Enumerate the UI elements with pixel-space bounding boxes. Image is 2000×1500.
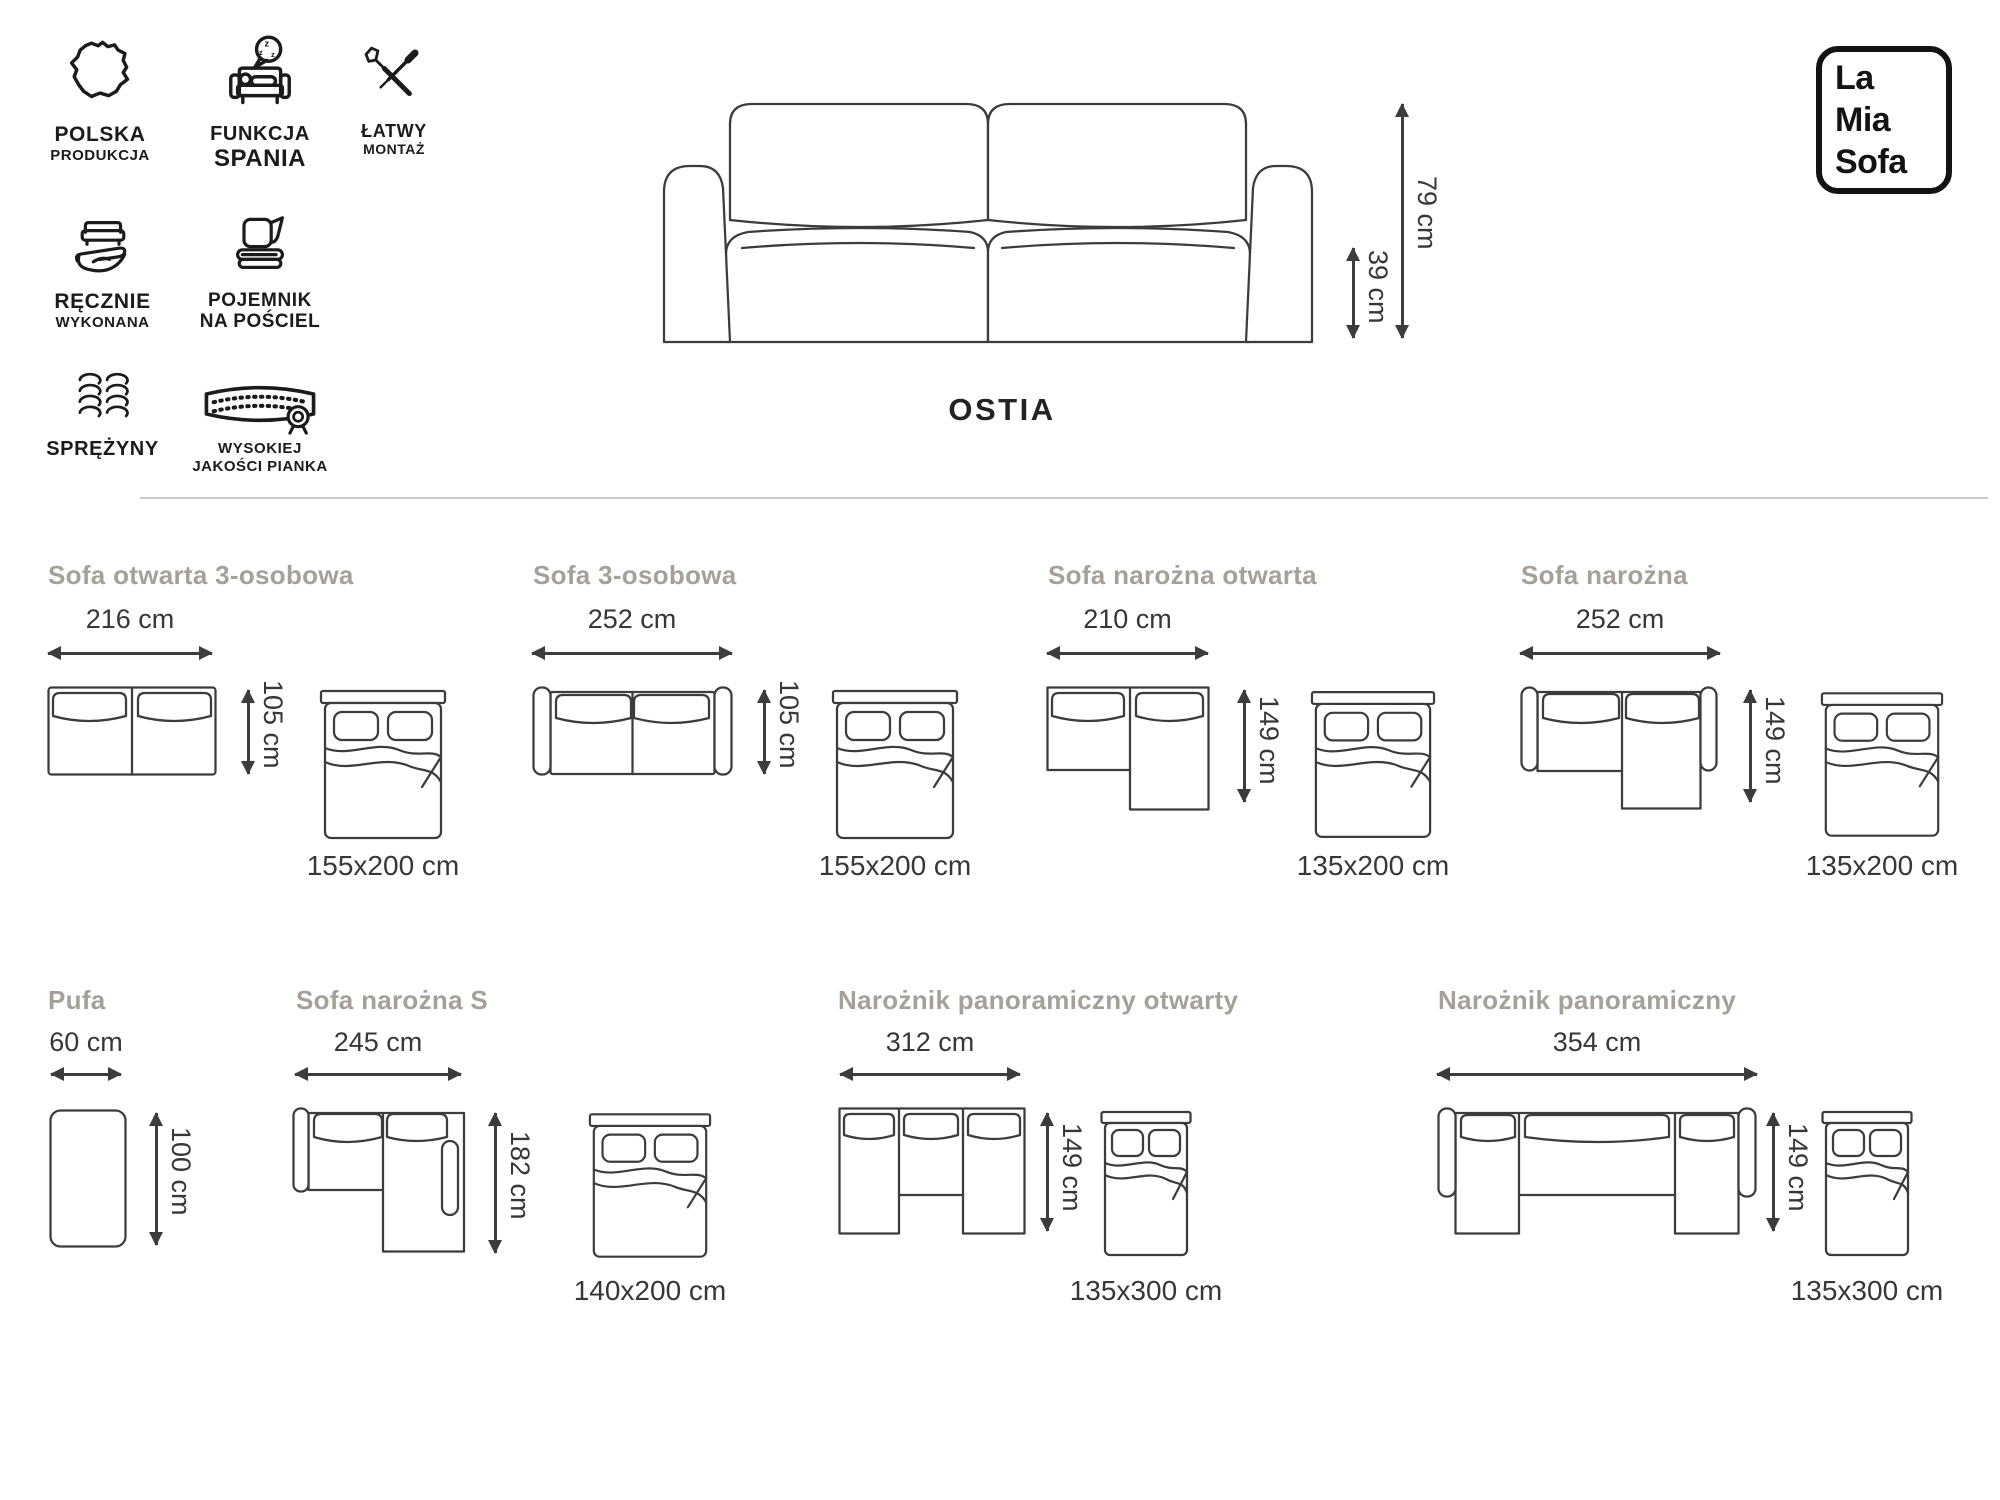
feature-sublabel: WYKONANA bbox=[35, 314, 170, 331]
bed-size-label: 135x300 cm bbox=[1772, 1275, 1962, 1307]
feature-label: RĘCZNIE bbox=[35, 290, 170, 314]
depth-label: 105 cm bbox=[257, 680, 288, 769]
sofa-top-view bbox=[1437, 1107, 1757, 1235]
sofa-top-view bbox=[532, 686, 733, 777]
bed-size-label: 155x200 cm bbox=[800, 850, 990, 882]
variant-sofa-otwarta-3-osobowa: Sofa otwarta 3-osobowa 216 cm 105 cm bbox=[40, 560, 490, 900]
width-arrow bbox=[1520, 652, 1720, 655]
zzz-text: z bbox=[259, 48, 263, 57]
variant-title: Sofa narożna S bbox=[296, 985, 488, 1016]
variant-pufa: Pufa 60 cm 100 cm bbox=[40, 985, 260, 1285]
feature-label: POLSKA bbox=[35, 123, 165, 147]
height-arrow bbox=[1401, 104, 1404, 338]
depth-label: 149 cm bbox=[1253, 696, 1284, 785]
feature-sublabel: MONTAŻ bbox=[348, 141, 440, 157]
depth-arrow bbox=[1749, 690, 1752, 802]
brand-logo-line: Mia bbox=[1835, 99, 1946, 141]
pufa-top-view bbox=[49, 1109, 127, 1248]
bed-top-view bbox=[1100, 1109, 1192, 1259]
feature-label: POJEMNIK bbox=[190, 290, 330, 311]
foam-mattress-icon bbox=[201, 372, 319, 436]
feature-label: ŁATWY bbox=[348, 121, 440, 141]
brand-logo-line: Sofa bbox=[1835, 141, 1946, 183]
brand-logo: La Mia Sofa bbox=[1816, 46, 1952, 194]
sofa-top-view bbox=[292, 1107, 469, 1254]
product-name: OSTIA bbox=[902, 392, 1102, 428]
variant-title: Sofa narożna bbox=[1521, 560, 1688, 591]
variant-title: Narożnik panoramiczny otwarty bbox=[838, 985, 1238, 1016]
feature-sprezyny: SPRĘŻYNY bbox=[35, 365, 170, 460]
bed-top-view bbox=[588, 1109, 712, 1261]
poland-map-icon bbox=[56, 32, 144, 118]
bed-top-view bbox=[1820, 688, 1944, 840]
width-label: 210 cm bbox=[1047, 604, 1208, 635]
depth-label: 149 cm bbox=[1782, 1123, 1813, 1212]
sofa-top-view bbox=[47, 686, 217, 776]
bed-size-label: 135x200 cm bbox=[1278, 850, 1468, 882]
feature-recznie-wykonana: RĘCZNIE WYKONANA bbox=[35, 205, 170, 331]
width-label: 252 cm bbox=[532, 604, 732, 635]
sofa-front-view bbox=[660, 96, 1316, 346]
width-label: 60 cm bbox=[41, 1027, 131, 1058]
width-arrow bbox=[1047, 652, 1208, 655]
bed-top-view bbox=[1821, 1109, 1913, 1259]
variant-naroznik-panoramiczny: Narożnik panoramiczny 354 cm 149 cm bbox=[1430, 985, 1990, 1305]
depth-arrow bbox=[1772, 1113, 1775, 1231]
feature-sublabel: NA POŚCIEL bbox=[190, 311, 330, 333]
width-arrow bbox=[295, 1073, 461, 1076]
depth-label: 149 cm bbox=[1759, 696, 1790, 785]
bedding-container-icon bbox=[215, 205, 305, 285]
feature-polska-produkcja: POLSKA PRODUKCJA bbox=[35, 32, 165, 164]
depth-arrow bbox=[494, 1113, 497, 1253]
section-divider bbox=[140, 497, 1988, 499]
width-label: 312 cm bbox=[840, 1027, 1020, 1058]
variant-sofa-narozna-otwarta: Sofa narożna otwarta 210 cm 149 cm bbox=[1040, 560, 1480, 900]
width-arrow bbox=[48, 652, 212, 655]
depth-label: 182 cm bbox=[504, 1131, 535, 1220]
feature-wysokiej-jakosci-pianka: WYSOKIEJ JAKOŚCI PIANKA bbox=[185, 372, 335, 475]
brand-logo-line: La bbox=[1835, 57, 1946, 99]
bed-size-label: 135x300 cm bbox=[1051, 1275, 1241, 1307]
bed-top-view bbox=[831, 688, 959, 840]
sofa-top-view bbox=[1046, 686, 1210, 811]
feature-label: SPRĘŻYNY bbox=[35, 438, 170, 460]
depth-label: 149 cm bbox=[1056, 1123, 1087, 1212]
depth-arrow bbox=[247, 690, 250, 774]
width-label: 252 cm bbox=[1520, 604, 1720, 635]
variant-title: Pufa bbox=[48, 985, 106, 1016]
sleep-function-icon: z z z bbox=[212, 32, 308, 118]
feature-sublabel: SPANIA bbox=[190, 145, 330, 173]
variant-sofa-3-osobowa: Sofa 3-osobowa 252 cm 105 cm bbox=[525, 560, 1000, 900]
depth-arrow bbox=[155, 1113, 158, 1245]
bed-size-label: 140x200 cm bbox=[555, 1275, 745, 1307]
zzz-text: z bbox=[271, 50, 275, 59]
width-label: 216 cm bbox=[48, 604, 212, 635]
bed-top-view bbox=[319, 688, 447, 840]
variant-title: Sofa 3-osobowa bbox=[533, 560, 737, 591]
feature-label: WYSOKIEJ bbox=[185, 441, 335, 458]
product-spec-sheet: POLSKA PRODUKCJA z z z FUNKCJA SPANIA bbox=[0, 0, 2000, 1500]
width-arrow bbox=[51, 1073, 121, 1076]
depth-label: 100 cm bbox=[165, 1127, 196, 1216]
width-label: 245 cm bbox=[295, 1027, 461, 1058]
bed-top-view bbox=[1310, 688, 1436, 840]
depth-arrow bbox=[1046, 1113, 1049, 1231]
seat-height-label: 39 cm bbox=[1362, 250, 1393, 324]
feature-latwy-montaz: ŁATWY MONTAŻ bbox=[348, 32, 440, 157]
width-label: 354 cm bbox=[1437, 1027, 1757, 1058]
sofa-top-view bbox=[1520, 686, 1718, 810]
height-label: 79 cm bbox=[1411, 176, 1442, 250]
feature-funkcja-spania: z z z FUNKCJA SPANIA bbox=[190, 32, 330, 173]
width-arrow bbox=[532, 652, 732, 655]
variant-sofa-narozna: Sofa narożna 252 cm 149 cm bbox=[1513, 560, 1983, 900]
depth-label: 105 cm bbox=[773, 680, 804, 769]
zzz-text: z bbox=[265, 39, 270, 50]
tools-icon bbox=[359, 32, 429, 116]
seat-height-arrow bbox=[1352, 248, 1355, 338]
springs-icon bbox=[66, 365, 140, 433]
feature-pojemnik-na-posciel: POJEMNIK NA POŚCIEL bbox=[190, 205, 330, 333]
sofa-top-view bbox=[838, 1107, 1026, 1235]
variant-title: Narożnik panoramiczny bbox=[1438, 985, 1736, 1016]
hand-sofa-icon bbox=[58, 205, 148, 285]
variant-title: Sofa narożna otwarta bbox=[1048, 560, 1317, 591]
bed-size-label: 155x200 cm bbox=[288, 850, 478, 882]
depth-arrow bbox=[763, 690, 766, 774]
feature-sublabel: JAKOŚCI PIANKA bbox=[185, 458, 335, 475]
width-arrow bbox=[840, 1073, 1020, 1076]
variant-title: Sofa otwarta 3-osobowa bbox=[48, 560, 354, 591]
variant-sofa-narozna-s: Sofa narożna S 245 cm 182 cm bbox=[288, 985, 768, 1305]
feature-label: FUNKCJA bbox=[190, 123, 330, 145]
feature-sublabel: PRODUKCJA bbox=[35, 147, 165, 164]
bed-size-label: 135x200 cm bbox=[1787, 850, 1977, 882]
width-arrow bbox=[1437, 1073, 1757, 1076]
variant-naroznik-panoramiczny-otwarty: Narożnik panoramiczny otwarty 312 cm 149… bbox=[830, 985, 1310, 1305]
depth-arrow bbox=[1243, 690, 1246, 802]
